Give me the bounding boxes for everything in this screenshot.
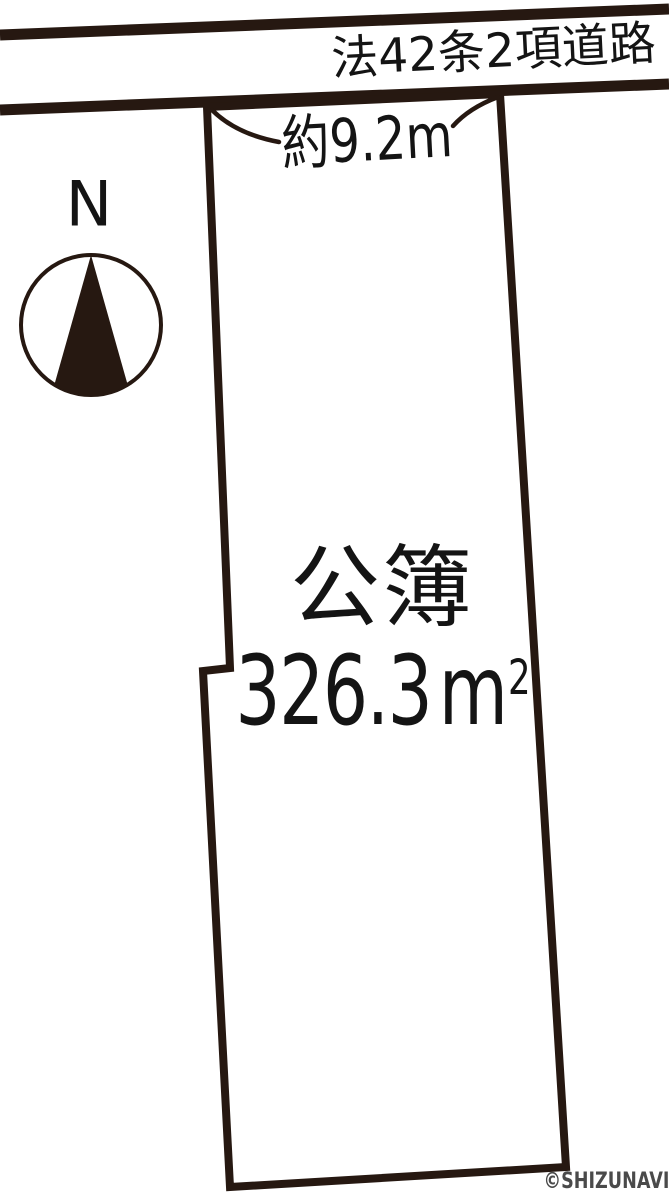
parcel-area-value: 326.3 bbox=[235, 635, 431, 747]
frontage-leader-right bbox=[453, 97, 498, 126]
north-label: N bbox=[66, 169, 112, 238]
parcel-area-label: 326.3m2 bbox=[235, 638, 530, 746]
frontage-leader-left bbox=[212, 110, 279, 142]
frontage-width-label: 約9.2m bbox=[280, 103, 454, 179]
compass-needle-icon bbox=[54, 255, 128, 394]
parcel-area-exponent: 2 bbox=[508, 650, 531, 706]
parcel-register-label: 公簿 bbox=[290, 539, 474, 640]
copyright-label: ©SHIZUNAVI bbox=[543, 1170, 669, 1195]
site-plan: 法42条2項道路 約9.2m 公簿 326.3m2 N ©SHIZUNAVI bbox=[0, 0, 669, 1196]
parcel-area-unit: m bbox=[439, 635, 507, 747]
